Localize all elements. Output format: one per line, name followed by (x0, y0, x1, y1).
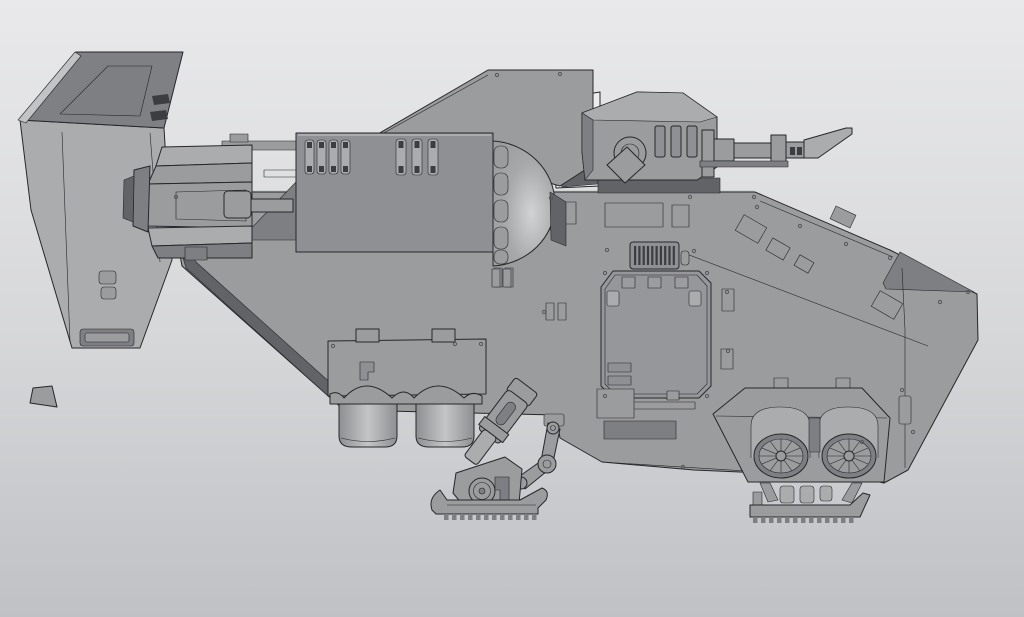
side-vent (722, 289, 734, 311)
cowl-slot (494, 250, 508, 264)
turret-vent (655, 126, 665, 157)
hinge (101, 287, 116, 299)
door-tab (675, 277, 688, 288)
canopy-vent-panel (296, 133, 493, 252)
door-tab (648, 277, 661, 288)
barrel-rail (700, 161, 788, 167)
cowl-slot (494, 227, 508, 249)
cowl-slot (494, 173, 508, 195)
recessed-panel (672, 205, 689, 227)
door-tab (622, 277, 635, 288)
door-slot (608, 363, 631, 372)
turret-vent (687, 126, 697, 157)
cowl-slot (494, 200, 508, 222)
turbine-fan-left (754, 434, 808, 478)
lower-fin-tip (30, 386, 57, 407)
viewport-3d[interactable] (0, 0, 1024, 617)
cowl-slot (494, 146, 508, 168)
gunship-render (0, 0, 1024, 617)
underhull-box (597, 389, 634, 418)
turret-vent (671, 126, 681, 157)
door-handle (689, 291, 701, 306)
actuator-box (224, 191, 251, 218)
recessed-panel (605, 203, 663, 227)
vent-slots-right (396, 139, 438, 175)
nose-cap (133, 166, 150, 232)
nose-cap-tip (123, 176, 134, 222)
turbine-fan-right (822, 434, 876, 478)
side-door (601, 271, 711, 409)
barrel-collar (771, 135, 786, 163)
rear-latch (899, 396, 911, 424)
underhull-box (604, 421, 676, 439)
actuator-bar (251, 199, 293, 212)
pod-top-box (432, 329, 455, 342)
hinge (99, 271, 116, 284)
pod-housing (328, 339, 486, 396)
pod-top-box (356, 329, 379, 342)
door-handle (607, 291, 619, 306)
door-slot (608, 376, 631, 385)
